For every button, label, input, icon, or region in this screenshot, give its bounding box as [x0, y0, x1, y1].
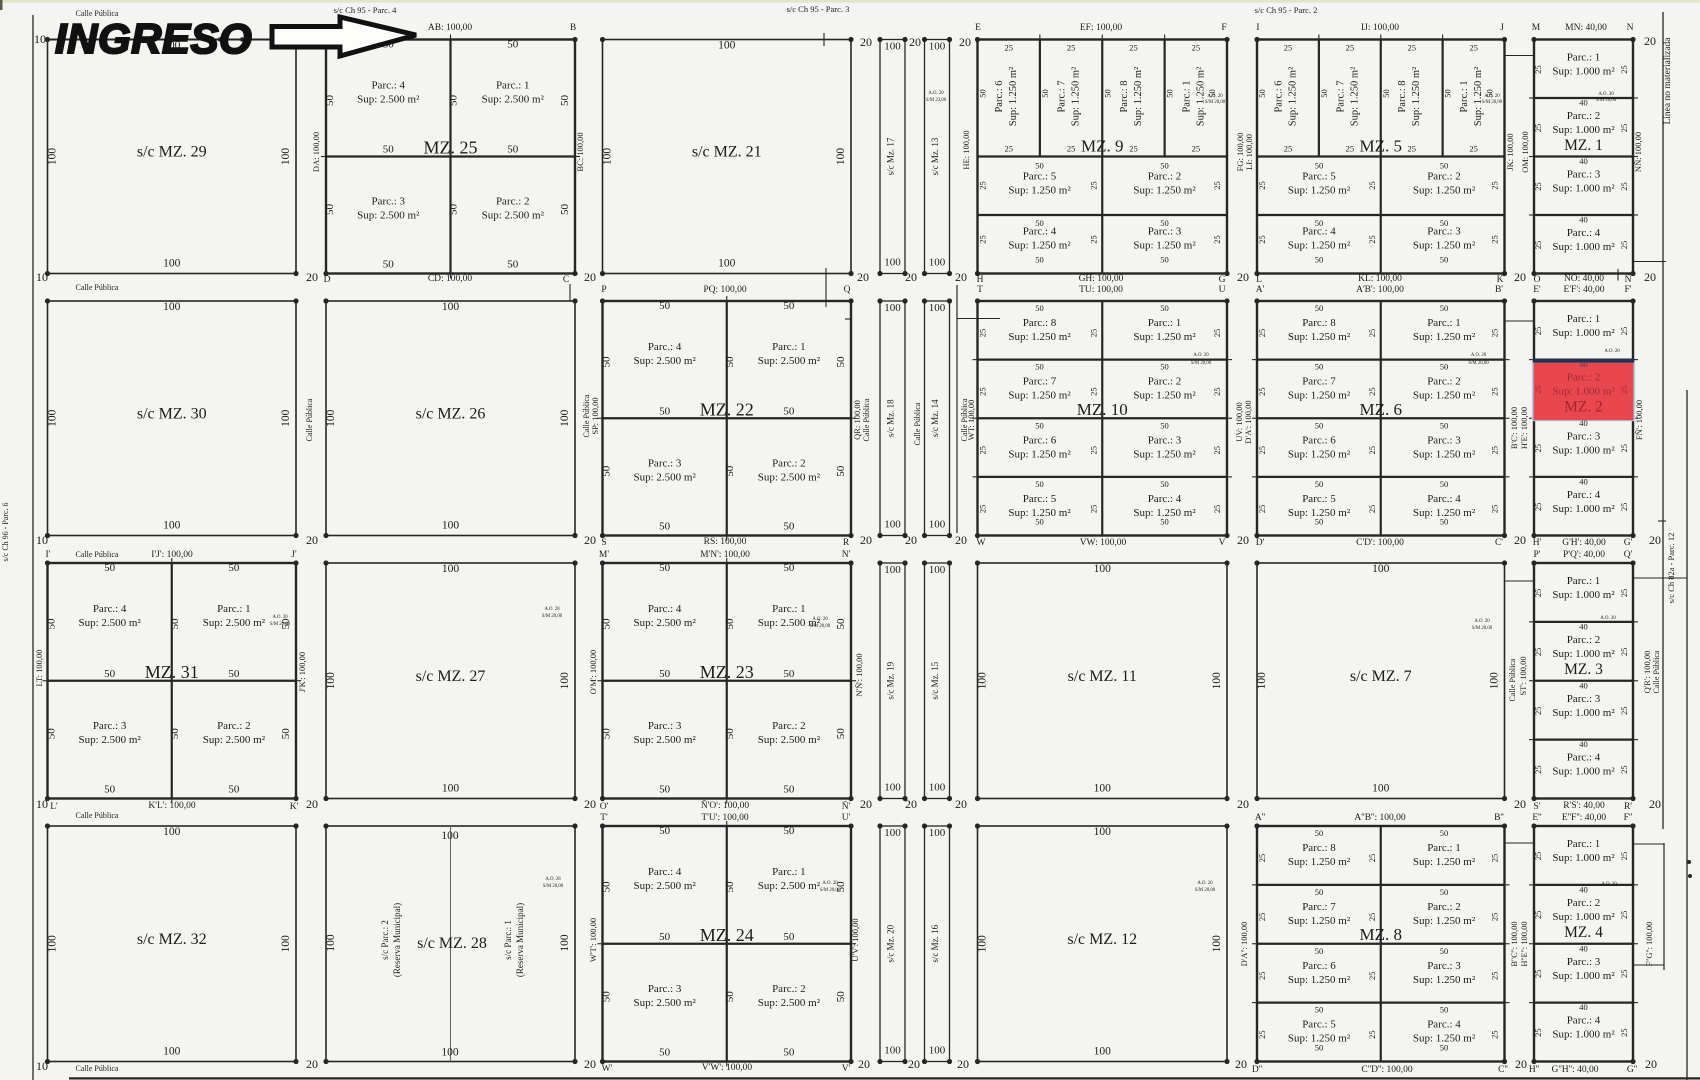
svg-text:Calle Pública: Calle Pública [862, 398, 871, 441]
svg-text:A.O. 28: A.O. 28 [545, 877, 561, 882]
svg-text:Sup: 2.500 m²: Sup: 2.500 m² [633, 355, 696, 367]
svg-text:Parc.: 1: Parc.: 1 [1181, 80, 1192, 112]
svg-text:20: 20 [860, 533, 872, 547]
svg-text:25: 25 [1212, 446, 1222, 455]
svg-text:A.O. 28: A.O. 28 [544, 607, 560, 612]
svg-text:100: 100 [442, 783, 460, 795]
svg-text:s/c MZ. 12: s/c MZ. 12 [1067, 931, 1137, 948]
svg-text:100: 100 [325, 409, 337, 427]
svg-text:25: 25 [1619, 707, 1629, 716]
svg-text:E: E [975, 23, 981, 33]
svg-text:10: 10 [36, 533, 48, 547]
svg-text:s/c MZ. 32: s/c MZ. 32 [137, 931, 207, 948]
svg-text:Parc.: 5: Parc.: 5 [1023, 493, 1057, 505]
svg-text:25: 25 [1619, 385, 1629, 394]
svg-text:Sup: 1.000 m²: Sup: 1.000 m² [1552, 589, 1615, 601]
svg-text:25: 25 [1257, 972, 1267, 981]
svg-text:50: 50 [1315, 255, 1324, 265]
svg-text:100: 100 [929, 257, 946, 269]
svg-text:100: 100 [1211, 672, 1223, 690]
svg-text:50: 50 [1257, 89, 1267, 98]
svg-text:Sup: 1.250 m²: Sup: 1.250 m² [1133, 390, 1196, 402]
svg-text:Calle Pública: Calle Pública [76, 811, 119, 820]
svg-text:Calle Pública: Calle Pública [76, 550, 119, 559]
svg-text:40: 40 [1579, 418, 1588, 428]
svg-text:50: 50 [228, 668, 240, 680]
svg-text:G': G' [1624, 538, 1633, 548]
svg-text:Sup: 1.000 m²: Sup: 1.000 m² [1552, 852, 1615, 864]
svg-text:50: 50 [659, 300, 671, 312]
svg-text:Parc.: 2: Parc.: 2 [772, 457, 806, 469]
svg-text:Parc.: 2: Parc.: 2 [1567, 634, 1601, 646]
svg-text:s/c Ch 95 - Parc. 2: s/c Ch 95 - Parc. 2 [1255, 5, 1318, 15]
svg-text:M': M' [599, 550, 609, 560]
svg-text:Sup: 1.000 m²: Sup: 1.000 m² [1552, 124, 1615, 136]
svg-text:25: 25 [1212, 505, 1222, 514]
svg-text:50: 50 [46, 728, 58, 740]
svg-text:s/c MZ. 11: s/c MZ. 11 [1068, 668, 1137, 685]
svg-text:100: 100 [441, 830, 459, 842]
svg-text:20: 20 [908, 1057, 920, 1071]
svg-text:Sup: 2.500 m²: Sup: 2.500 m² [633, 617, 696, 629]
svg-text:50: 50 [1160, 362, 1169, 372]
svg-text:s/c Ch 96 - Parc. 6: s/c Ch 96 - Parc. 6 [1, 502, 10, 561]
svg-text:100: 100 [163, 826, 181, 838]
svg-text:100: 100 [1094, 1046, 1112, 1058]
svg-text:100: 100 [442, 301, 460, 313]
svg-text:Sup: 1.000 m²: Sup: 1.000 m² [1552, 241, 1615, 253]
svg-text:25: 25 [1490, 972, 1500, 981]
svg-text:S/M 20,00: S/M 20,00 [543, 884, 564, 889]
svg-text:20: 20 [1515, 1057, 1527, 1071]
svg-text:50: 50 [835, 356, 847, 368]
svg-text:Sup: 1.250 m²: Sup: 1.250 m² [1133, 185, 1196, 197]
svg-text:25: 25 [1533, 707, 1543, 716]
svg-text:MZ. 31: MZ. 31 [145, 662, 199, 682]
svg-text:Parc.: 2: Parc.: 2 [217, 720, 251, 732]
svg-text:Sup: 1.000 m²: Sup: 1.000 m² [1552, 970, 1615, 982]
svg-text:DA: 100,00: DA: 100,00 [311, 132, 321, 172]
svg-text:25: 25 [1212, 235, 1222, 244]
svg-text:25: 25 [1367, 1030, 1377, 1039]
svg-text:D'A': 100,00: D'A': 100,00 [1243, 400, 1253, 443]
svg-text:BC: 100,00: BC: 100,00 [575, 132, 585, 171]
svg-text:V'W': 100,00: V'W': 100,00 [702, 1063, 753, 1073]
svg-text:20: 20 [955, 797, 967, 811]
svg-text:50: 50 [659, 562, 671, 574]
svg-text:N'Ñ': 100,00: N'Ñ': 100,00 [854, 653, 864, 696]
svg-text:20: 20 [1644, 270, 1656, 284]
svg-text:Parc.: 6: Parc.: 6 [1302, 434, 1336, 446]
svg-text:Parc.: 1: Parc.: 1 [1567, 575, 1601, 587]
svg-text:s/c Mz. 17: s/c Mz. 17 [886, 137, 896, 175]
svg-text:Parc.: 1: Parc.: 1 [772, 603, 806, 615]
svg-text:U': U' [842, 813, 851, 823]
svg-text:25: 25 [1469, 43, 1478, 53]
svg-text:Parc.: 1: Parc.: 1 [1459, 80, 1470, 112]
svg-text:50: 50 [835, 991, 847, 1003]
svg-text:MZ. 3: MZ. 3 [1564, 661, 1603, 678]
svg-text:25: 25 [1490, 181, 1500, 190]
svg-text:50: 50 [228, 562, 240, 574]
svg-text:Sup: 2.500 m²: Sup: 2.500 m² [758, 471, 821, 483]
svg-text:P'Q': 40,00: P'Q': 40,00 [1563, 550, 1605, 560]
svg-text:Parc.: 6: Parc.: 6 [994, 80, 1005, 112]
svg-text:25: 25 [1257, 235, 1267, 244]
svg-text:50: 50 [1165, 89, 1175, 98]
svg-text:R: R [843, 538, 850, 548]
svg-text:E': E' [1533, 285, 1541, 295]
svg-text:10: 10 [36, 1059, 48, 1073]
svg-text:20: 20 [905, 797, 917, 811]
svg-text:s/c Mz. 19: s/c Mz. 19 [886, 661, 896, 699]
svg-text:25: 25 [1533, 503, 1543, 512]
svg-text:KL: 100,00: KL: 100,00 [1358, 274, 1402, 284]
svg-text:10: 10 [36, 270, 48, 284]
svg-text:100: 100 [884, 257, 901, 269]
svg-text:Sup: 2.500 m²: Sup: 2.500 m² [633, 734, 696, 746]
svg-text:40: 40 [1579, 621, 1588, 631]
svg-text:A.O. 20: A.O. 20 [272, 615, 288, 620]
svg-text:20: 20 [1645, 1057, 1657, 1071]
svg-text:25: 25 [1407, 144, 1416, 154]
svg-text:P: P [601, 285, 606, 295]
svg-text:A''B'': 100,00: A''B'': 100,00 [1354, 813, 1405, 823]
svg-text:Sup: 1.250 m²: Sup: 1.250 m² [1008, 67, 1019, 126]
svg-text:50: 50 [383, 144, 395, 156]
svg-text:20: 20 [955, 270, 967, 284]
svg-text:Parc.: 1: Parc.: 1 [1427, 842, 1461, 854]
svg-text:50: 50 [1440, 420, 1449, 430]
svg-text:25: 25 [1533, 589, 1543, 598]
svg-text:Sup: 1.000 m²: Sup: 1.000 m² [1552, 503, 1615, 515]
svg-text:50: 50 [104, 668, 116, 680]
svg-text:Sup: 1.250 m²: Sup: 1.250 m² [1413, 448, 1476, 460]
svg-text:25: 25 [1619, 124, 1629, 133]
svg-text:A.O. 20: A.O. 20 [1197, 881, 1213, 886]
svg-text:S/M 20,00: S/M 20,00 [1468, 361, 1489, 366]
svg-text:MZ. 6: MZ. 6 [1360, 400, 1403, 419]
svg-text:50: 50 [1315, 161, 1324, 171]
svg-text:Sup: 2.500 m²: Sup: 2.500 m² [633, 997, 696, 1009]
svg-text:Calle Pública: Calle Pública [1508, 658, 1517, 701]
svg-text:40: 40 [1579, 884, 1588, 894]
svg-text:Parc.: 2: Parc.: 2 [1427, 376, 1461, 388]
svg-text:50: 50 [1315, 303, 1324, 313]
svg-text:A': A' [1256, 285, 1265, 295]
svg-text:E'F': 40,00: E'F': 40,00 [1564, 285, 1605, 295]
svg-text:Parc.: 1: Parc.: 1 [1567, 52, 1601, 64]
svg-text:50: 50 [783, 931, 795, 943]
svg-text:SP: 100,00: SP: 100,00 [590, 397, 600, 434]
svg-text:50: 50 [383, 259, 395, 271]
svg-text:25: 25 [1367, 854, 1377, 863]
svg-text:S': S' [1534, 802, 1541, 812]
svg-text:Ñ': Ñ' [842, 800, 851, 812]
svg-text:A.O. 20: A.O. 20 [1474, 619, 1490, 624]
svg-text:100: 100 [884, 302, 901, 314]
svg-text:50: 50 [724, 728, 736, 740]
svg-text:Parc.: 1: Parc.: 1 [1567, 313, 1601, 325]
svg-text:25: 25 [1284, 43, 1293, 53]
svg-text:25: 25 [1619, 327, 1629, 336]
svg-text:A.O. 20: A.O. 20 [1193, 353, 1209, 358]
svg-text:Sup: 1.250 m²: Sup: 1.250 m² [1288, 448, 1351, 460]
svg-text:100: 100 [884, 519, 901, 531]
svg-text:50: 50 [1035, 420, 1044, 430]
svg-text:CD: 100,00: CD: 100,00 [428, 274, 473, 284]
svg-text:ST': 100,00: ST': 100,00 [1518, 656, 1528, 695]
svg-text:Sup: 2.500 m²: Sup: 2.500 m² [78, 617, 141, 629]
svg-text:Parc.: 3: Parc.: 3 [1427, 434, 1461, 446]
svg-text:Parc.: 4: Parc.: 4 [1567, 752, 1601, 764]
svg-text:50: 50 [1440, 517, 1449, 527]
svg-text:Parc.: 3: Parc.: 3 [648, 983, 682, 995]
svg-text:Sup: 1.250 m²: Sup: 1.250 m² [1413, 240, 1476, 252]
svg-text:TU: 100,00: TU: 100,00 [1079, 285, 1123, 295]
svg-text:50: 50 [1315, 479, 1324, 489]
svg-text:Parc.: 3: Parc.: 3 [1567, 430, 1601, 442]
svg-text:25: 25 [1257, 913, 1267, 922]
svg-text:Parc.: 4: Parc.: 4 [371, 80, 405, 92]
svg-text:100: 100 [1372, 783, 1390, 795]
svg-text:50: 50 [783, 668, 795, 680]
svg-text:25: 25 [1192, 144, 1201, 154]
svg-text:25: 25 [1533, 1028, 1543, 1037]
svg-text:50: 50 [1315, 362, 1324, 372]
svg-text:Parc.: 4: Parc.: 4 [648, 603, 682, 615]
svg-text:50: 50 [1035, 161, 1044, 171]
svg-text:25: 25 [1212, 181, 1222, 190]
svg-text:V: V [1219, 538, 1226, 548]
svg-text:Parc.: 4: Parc.: 4 [648, 341, 682, 353]
svg-text:20: 20 [1514, 270, 1526, 284]
svg-text:50: 50 [559, 95, 571, 107]
svg-text:Sup: 1.000 m²: Sup: 1.000 m² [1552, 1029, 1615, 1041]
svg-text:O': O' [600, 802, 609, 812]
svg-text:Sup: 2.500 m²: Sup: 2.500 m² [758, 734, 821, 746]
svg-text:25: 25 [1490, 505, 1500, 514]
svg-text:25: 25 [1469, 144, 1478, 154]
svg-text:100: 100 [163, 1046, 181, 1058]
svg-text:B: B [570, 23, 576, 33]
svg-text:Parc.: 4: Parc.: 4 [1427, 1019, 1461, 1031]
svg-text:Sup: 1.250 m²: Sup: 1.250 m² [1413, 856, 1476, 868]
svg-text:50: 50 [104, 562, 116, 574]
svg-text:25: 25 [1490, 329, 1500, 338]
svg-text:50: 50 [1035, 517, 1044, 527]
svg-text:L: L [1256, 275, 1262, 285]
svg-text:25: 25 [978, 329, 988, 338]
svg-text:H': H' [1533, 538, 1542, 548]
svg-text:T: T [977, 285, 983, 295]
svg-text:Parc.: 7: Parc.: 7 [1302, 901, 1336, 913]
svg-text:50: 50 [1440, 255, 1449, 265]
svg-text:H'': H'' [1529, 1065, 1540, 1075]
svg-text:Sup: 1.250 m²: Sup: 1.250 m² [1133, 240, 1196, 252]
svg-text:Sup: 1.250 m²: Sup: 1.250 m² [1413, 185, 1476, 197]
svg-text:F: F [1221, 23, 1226, 33]
svg-text:Sup: 1.250 m²: Sup: 1.250 m² [1413, 331, 1476, 343]
svg-text:H'E': 100,00: H'E': 100,00 [1519, 407, 1529, 449]
svg-text:50: 50 [835, 465, 847, 477]
svg-text:NÑ: 100,00: NÑ: 100,00 [1633, 132, 1643, 172]
svg-text:MZ. 10: MZ. 10 [1077, 400, 1128, 419]
svg-text:Q: Q [844, 285, 851, 295]
svg-text:Sup: 1.000 m²: Sup: 1.000 m² [1552, 183, 1615, 195]
svg-text:50: 50 [1315, 420, 1324, 430]
svg-text:50: 50 [1315, 1043, 1324, 1053]
svg-text:Sup: 2.500 m²: Sup: 2.500 m² [633, 471, 696, 483]
svg-text:25: 25 [1284, 144, 1293, 154]
svg-text:Parc.: 4: Parc.: 4 [1567, 489, 1601, 501]
svg-text:A.O. 20: A.O. 20 [1471, 353, 1487, 358]
svg-text:20: 20 [905, 533, 917, 547]
svg-text:Sup: 2.500 m²: Sup: 2.500 m² [482, 210, 545, 222]
svg-text:S/M 23,00: S/M 23,00 [926, 98, 947, 103]
svg-text:25: 25 [1619, 182, 1629, 191]
svg-text:20: 20 [860, 797, 872, 811]
svg-text:25: 25 [1533, 241, 1543, 250]
svg-text:PQ: 100,00: PQ: 100,00 [703, 285, 747, 295]
svg-text:S/M 20,00: S/M 20,00 [1191, 361, 1212, 366]
svg-text:50: 50 [601, 618, 613, 630]
svg-text:Parc.: 3: Parc.: 3 [1148, 434, 1182, 446]
svg-text:100: 100 [602, 148, 614, 166]
svg-text:Parc.: 1: Parc.: 1 [1427, 317, 1461, 329]
svg-text:Sup: 1.250 m²: Sup: 1.250 m² [1288, 185, 1351, 197]
svg-text:50: 50 [724, 618, 736, 630]
svg-text:100: 100 [280, 148, 292, 166]
svg-text:Parc.: 8: Parc.: 8 [1397, 80, 1408, 112]
svg-text:I': I' [46, 550, 51, 560]
svg-text:100: 100 [47, 148, 59, 166]
svg-text:100: 100 [163, 258, 181, 270]
svg-text:MZ. 5: MZ. 5 [1360, 137, 1403, 156]
svg-text:50: 50 [1440, 1005, 1449, 1015]
svg-text:50: 50 [169, 728, 181, 740]
svg-text:MZ. 9: MZ. 9 [1081, 137, 1124, 156]
svg-text:S: S [601, 538, 606, 548]
svg-text:Sup: 2.500 m²: Sup: 2.500 m² [758, 880, 821, 892]
svg-text:25: 25 [1346, 43, 1355, 53]
svg-text:A.O. 20: A.O. 20 [1601, 882, 1617, 887]
svg-text:50: 50 [448, 204, 460, 216]
svg-text:H: H [977, 275, 984, 285]
svg-text:S/M 20,00: S/M 20,00 [810, 624, 831, 629]
svg-text:25: 25 [1490, 1030, 1500, 1039]
svg-text:I: I [1256, 23, 1259, 33]
svg-text:50: 50 [1381, 89, 1391, 98]
svg-text:ÑO: 40,00: ÑO: 40,00 [1564, 272, 1604, 284]
svg-text:50: 50 [1160, 255, 1169, 265]
svg-text:50: 50 [978, 89, 988, 98]
svg-text:Parc.: 2: Parc.: 2 [1567, 372, 1601, 384]
svg-text:50: 50 [1440, 362, 1449, 372]
svg-text:QR: 100,00: QR: 100,00 [852, 400, 862, 440]
svg-text:Parc.: 3: Parc.: 3 [371, 196, 405, 208]
svg-text:s/c MZ. 30: s/c MZ. 30 [137, 405, 207, 422]
svg-text:Parc.: 5: Parc.: 5 [1302, 171, 1336, 183]
svg-text:S/M 20,00: S/M 20,00 [270, 622, 291, 627]
svg-text:Parc.: 7: Parc.: 7 [1023, 376, 1057, 388]
svg-text:20: 20 [1514, 797, 1526, 811]
svg-text:Sup: 1.250 m²: Sup: 1.250 m² [1008, 185, 1071, 197]
svg-text:Sup: 1.250 m²: Sup: 1.250 m² [1349, 67, 1360, 126]
svg-text:M: M [1532, 23, 1541, 33]
svg-text:100: 100 [559, 672, 571, 690]
svg-text:Sup: 1.250 m²: Sup: 1.250 m² [1288, 240, 1351, 252]
svg-text:25: 25 [1367, 913, 1377, 922]
svg-text:R'S': 40,00: R'S': 40,00 [1563, 801, 1605, 811]
svg-text:Sup: 1.000 m²: Sup: 1.000 m² [1552, 386, 1615, 398]
svg-text:100: 100 [884, 1045, 901, 1057]
svg-text:50: 50 [1440, 946, 1449, 956]
svg-text:50: 50 [783, 300, 795, 312]
svg-text:20: 20 [959, 35, 971, 49]
svg-text:50: 50 [835, 618, 847, 630]
svg-text:40: 40 [1579, 98, 1588, 108]
svg-text:Parc.: 5: Parc.: 5 [1023, 171, 1057, 183]
svg-text:Sup: 1.000 m²: Sup: 1.000 m² [1552, 444, 1615, 456]
svg-text:Parc.: 3: Parc.: 3 [1567, 693, 1601, 705]
svg-text:Parc.: 2: Parc.: 2 [1148, 171, 1182, 183]
svg-text:Parc.: 2: Parc.: 2 [1567, 110, 1601, 122]
svg-text:50: 50 [559, 204, 571, 216]
svg-text:Parc.: 4: Parc.: 4 [1567, 1015, 1601, 1027]
svg-text:50: 50 [783, 1047, 795, 1059]
svg-text:S/M 20,00: S/M 20,00 [1482, 100, 1503, 105]
svg-text:Sup: 1.250 m²: Sup: 1.250 m² [1008, 390, 1071, 402]
svg-text:100: 100 [559, 934, 571, 952]
svg-text:20: 20 [860, 35, 872, 49]
svg-text:H''E'': 100,00: H''E'': 100,00 [1519, 921, 1529, 966]
svg-text:GH: 100,00: GH: 100,00 [1079, 274, 1124, 284]
svg-text:WT: 100,00: WT: 100,00 [966, 400, 976, 441]
svg-text:50: 50 [1160, 303, 1169, 313]
svg-text:50: 50 [1440, 1043, 1449, 1053]
svg-text:Parc.: 8: Parc.: 8 [1302, 317, 1336, 329]
svg-text:J: J [1500, 23, 1504, 33]
svg-text:S/M 20,00: S/M 20,00 [542, 614, 563, 619]
svg-text:40: 40 [1579, 1002, 1588, 1012]
svg-text:(Reserva Municipal): (Reserva Municipal) [392, 903, 402, 977]
svg-text:20: 20 [1237, 270, 1249, 284]
svg-text:50: 50 [724, 465, 736, 477]
svg-text:EF: 100,00: EF: 100,00 [1080, 23, 1122, 33]
svg-text:50: 50 [46, 618, 58, 630]
svg-text:100: 100 [884, 827, 901, 839]
svg-text:100: 100 [835, 148, 847, 166]
svg-text:50: 50 [1440, 303, 1449, 313]
svg-text:50: 50 [1315, 517, 1324, 527]
svg-text:100: 100 [929, 41, 946, 53]
svg-text:Parc.: 7: Parc.: 7 [1057, 80, 1068, 112]
svg-text:25: 25 [1619, 1028, 1629, 1037]
svg-text:20: 20 [584, 533, 596, 547]
svg-text:HE: 100,00: HE: 100,00 [961, 130, 971, 169]
svg-text:C': C' [1495, 538, 1503, 548]
svg-text:Sup: 1.250 m²: Sup: 1.250 m² [1008, 448, 1071, 460]
svg-text:50: 50 [1315, 1005, 1324, 1015]
svg-text:Parc.: 3: Parc.: 3 [648, 720, 682, 732]
svg-text:25: 25 [1619, 589, 1629, 598]
svg-text:Sup: 1.000 m²: Sup: 1.000 m² [1552, 648, 1615, 660]
svg-text:50: 50 [1160, 218, 1169, 228]
svg-text:50: 50 [601, 728, 613, 740]
svg-text:P': P' [1534, 550, 1541, 560]
svg-text:K: K [1497, 275, 1504, 285]
